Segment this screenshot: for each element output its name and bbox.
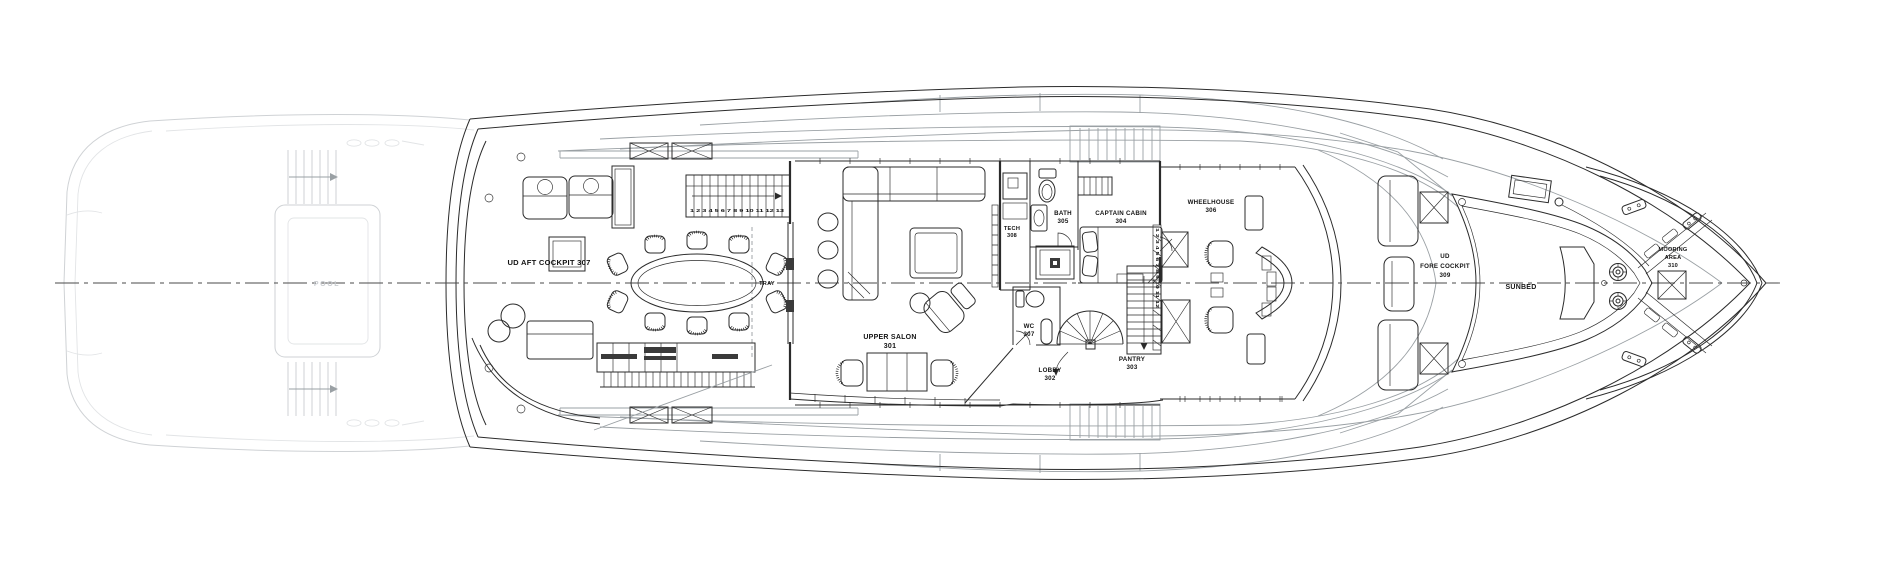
label-captain-cabin-number: 304 [1115, 218, 1126, 225]
label-sunbed: SUNBED [1505, 284, 1536, 291]
salon-walls [790, 348, 1163, 406]
label-wc-number: 307 [1023, 331, 1034, 338]
mooring-equipment [1602, 264, 1748, 310]
label-upper-salon-number: 301 [884, 343, 896, 350]
deck-plan-drawing: 1 2 3 4 5 6 7 8 9 10 11 12 13 [0, 0, 1900, 570]
label-pantry-number: 303 [1126, 364, 1137, 371]
wheelhouse-interior [1160, 196, 1295, 402]
label-upper-salon: UPPER SALON [863, 334, 916, 341]
label-tray: TRAY [759, 281, 775, 287]
pantry-staircase: 1 2 3 4 5 6 7 8 9 10 11 12 [1127, 225, 1190, 354]
label-bath-number: 305 [1057, 218, 1068, 225]
aft-staircase: 1 2 3 4 5 6 7 8 9 10 11 12 13 [686, 175, 790, 217]
label-bath: BATH [1054, 210, 1072, 217]
label-ud-aft-cockpit: UD AFT COCKPIT 307 [507, 258, 590, 267]
label-wc: WC [1024, 323, 1035, 330]
hull-exterior-lower [64, 283, 1766, 479]
yacht-deck-plan: 1 2 3 4 5 6 7 8 9 10 11 12 13 [0, 0, 1900, 570]
label-tech: TECH [1004, 226, 1020, 232]
label-ud-fore-cockpit-l2: FORE COCKPIT [1420, 263, 1470, 270]
label-lobby-number: 302 [1044, 375, 1055, 382]
salon-furniture [818, 167, 985, 391]
aft-cockpit-furniture [472, 166, 634, 424]
bath-room [1030, 161, 1078, 279]
label-mooring-number: 310 [1668, 263, 1678, 269]
wc-room [1013, 287, 1060, 345]
salon-aft-door [786, 161, 794, 400]
spiral-staircase [1053, 311, 1123, 376]
label-lobby: LOBBY [1039, 367, 1063, 374]
label-captain-cabin: CAPTAIN CABIN [1095, 210, 1147, 217]
label-pool-faint: POOL [314, 281, 340, 288]
aft-stair-step-numbers: 1 2 3 4 5 6 7 8 9 10 11 12 13 [690, 208, 785, 213]
label-mooring-l2: AREA [1665, 255, 1682, 261]
label-ud-fore-cockpit-number: 309 [1439, 272, 1450, 279]
label-mooring-l1: MOORING [1658, 247, 1687, 253]
label-pantry: PANTRY [1119, 356, 1146, 363]
label-ud-fore-cockpit-l1: UD [1440, 253, 1450, 260]
label-wheelhouse-number: 306 [1205, 207, 1216, 214]
label-tech-number: 308 [1007, 233, 1017, 239]
label-wheelhouse: WHEELHOUSE [1188, 199, 1235, 206]
sunbed-platform [1452, 175, 1652, 372]
